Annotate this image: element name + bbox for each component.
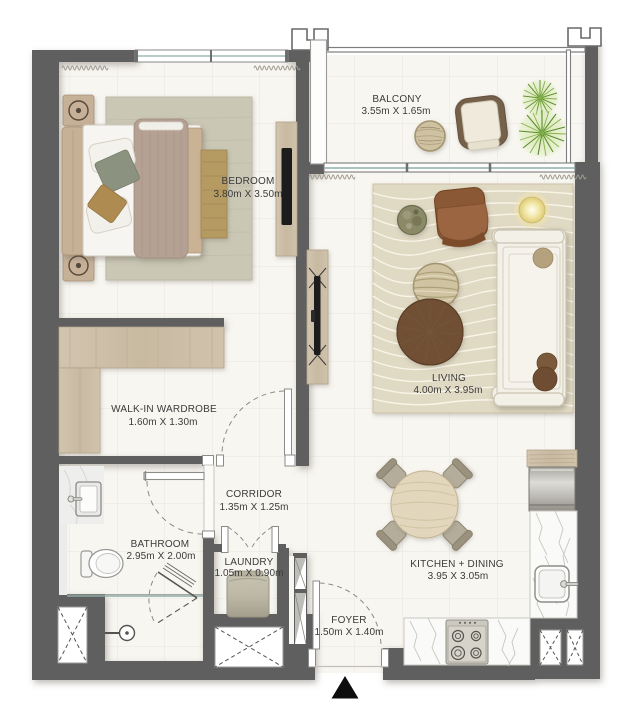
- svg-text:1.05m X 0.90m: 1.05m X 0.90m: [214, 568, 283, 579]
- svg-text:2.95m X 2.00m: 2.95m X 2.00m: [126, 551, 195, 562]
- svg-text:LAUNDRY: LAUNDRY: [224, 557, 273, 568]
- svg-text:1.60m X 1.30m: 1.60m X 1.30m: [128, 417, 197, 428]
- svg-text:3.95 X 3.05m: 3.95 X 3.05m: [428, 571, 489, 582]
- svg-text:1.50m X 1.40m: 1.50m X 1.40m: [314, 627, 383, 638]
- svg-text:KITCHEN + DINING: KITCHEN + DINING: [410, 559, 504, 570]
- svg-text:FOYER: FOYER: [331, 615, 366, 626]
- svg-text:3.55m X 1.65m: 3.55m X 1.65m: [361, 106, 430, 117]
- svg-text:BEDROOM: BEDROOM: [221, 176, 274, 187]
- svg-text:WALK-IN WARDROBE: WALK-IN WARDROBE: [111, 404, 217, 415]
- svg-text:BATHROOM: BATHROOM: [131, 539, 190, 550]
- svg-text:4.00m X 3.95m: 4.00m X 3.95m: [413, 385, 482, 396]
- svg-text:BALCONY: BALCONY: [372, 94, 421, 105]
- svg-text:1.35m X 1.25m: 1.35m X 1.25m: [219, 502, 288, 513]
- svg-text:3.80m X 3.50m: 3.80m X 3.50m: [213, 189, 282, 200]
- svg-text:CORRIDOR: CORRIDOR: [226, 489, 282, 500]
- svg-text:LIVING: LIVING: [432, 373, 466, 384]
